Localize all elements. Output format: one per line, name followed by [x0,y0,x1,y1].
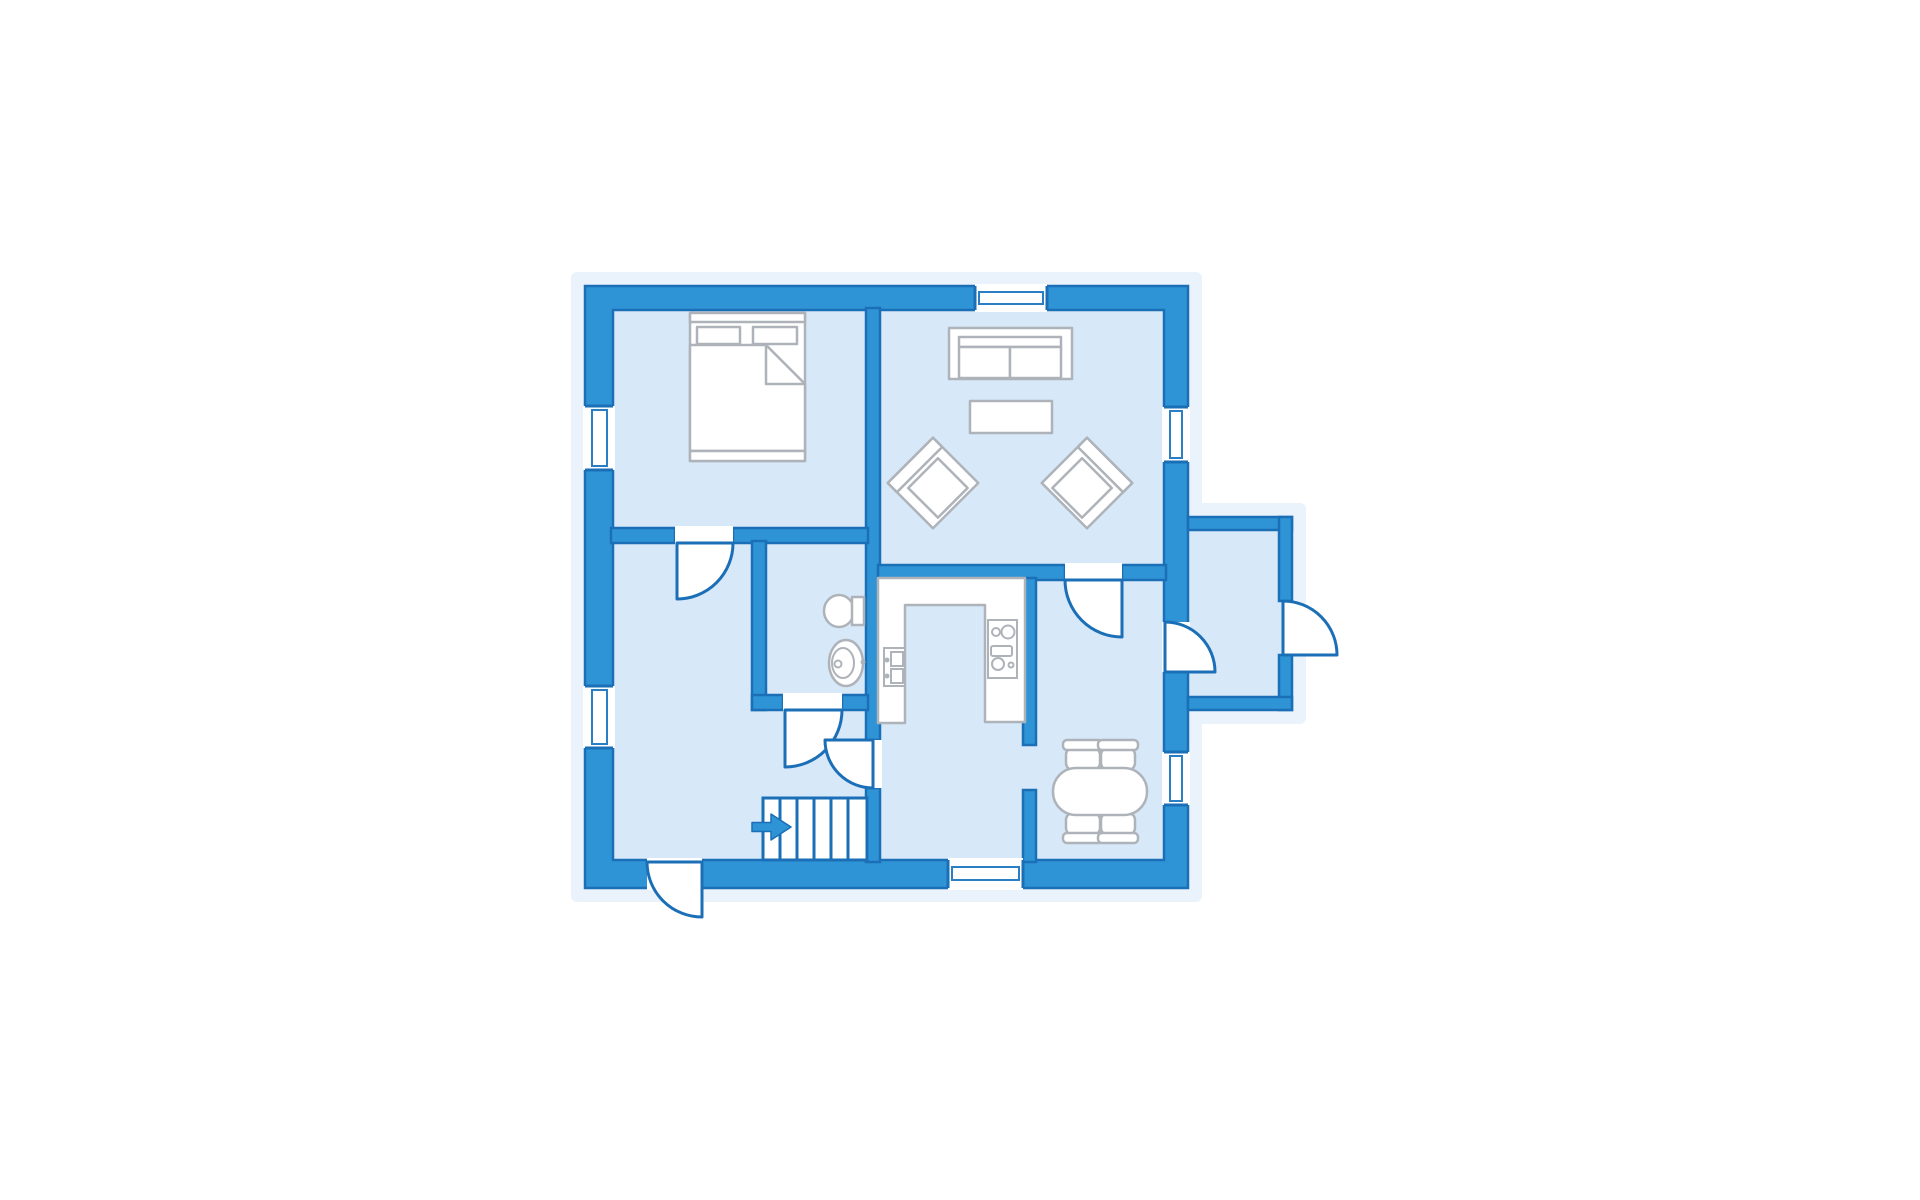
coffee-table [970,401,1052,433]
dining-chair-seat [1101,813,1135,835]
sofa-cushion-right [1010,347,1061,378]
dining-set [1053,740,1147,843]
bed-pillow-right [753,327,797,344]
double-bed [690,313,805,461]
door-front-entrance [647,858,702,917]
floor-plan-canvas [0,0,1920,1200]
sofa-cushion-left [959,347,1010,378]
wall-kitchen-dining-lower [1023,790,1036,862]
sink-drain [835,661,842,668]
sofa [949,328,1072,379]
toilet-bowl [824,595,854,627]
porch-wall-bottom [1188,697,1292,710]
porch-wall-top [1188,517,1292,530]
window [583,686,615,748]
floor-plan [0,0,1920,1200]
wall-bedroom-bottom-left [611,528,675,543]
sofa-backrest [959,337,1061,347]
window [1162,752,1190,805]
dining-chair-seat [1066,813,1100,835]
dining-table [1053,768,1147,815]
faucet-knob [885,658,890,663]
burner-large [1002,626,1015,639]
wall-bathroom-bottom-left [752,695,783,710]
bed-pillow-left [697,327,740,344]
wall-bathroom-left [752,541,766,710]
window [948,858,1023,890]
dining-chair-seat [1066,748,1100,770]
kitchen-sink [884,648,905,686]
burner-small [1009,663,1014,668]
window [1162,407,1190,462]
stove-control [991,646,1012,656]
window [583,406,615,470]
toilet-tank [852,597,864,625]
dining-chair-seat [1101,748,1135,770]
dining-chair-back [1098,833,1138,843]
bed-headboard [690,313,805,322]
wall-bathroom-bottom-right [842,695,868,710]
burner-small [992,628,1000,636]
sink-basin-top [891,652,903,666]
stove [988,620,1017,678]
faucet-knob [885,674,890,679]
door-porch-outer [1283,601,1337,655]
window [975,284,1047,312]
porch-wall-right-upper [1279,517,1292,601]
toilet [824,595,864,627]
sink-faucet [861,660,866,665]
burner-large [992,658,1004,670]
sink-basin-bottom [891,669,903,683]
bed-footboard [690,451,805,461]
wall-living-bottom-right [1122,565,1166,580]
dining-chair-back [1098,740,1138,750]
